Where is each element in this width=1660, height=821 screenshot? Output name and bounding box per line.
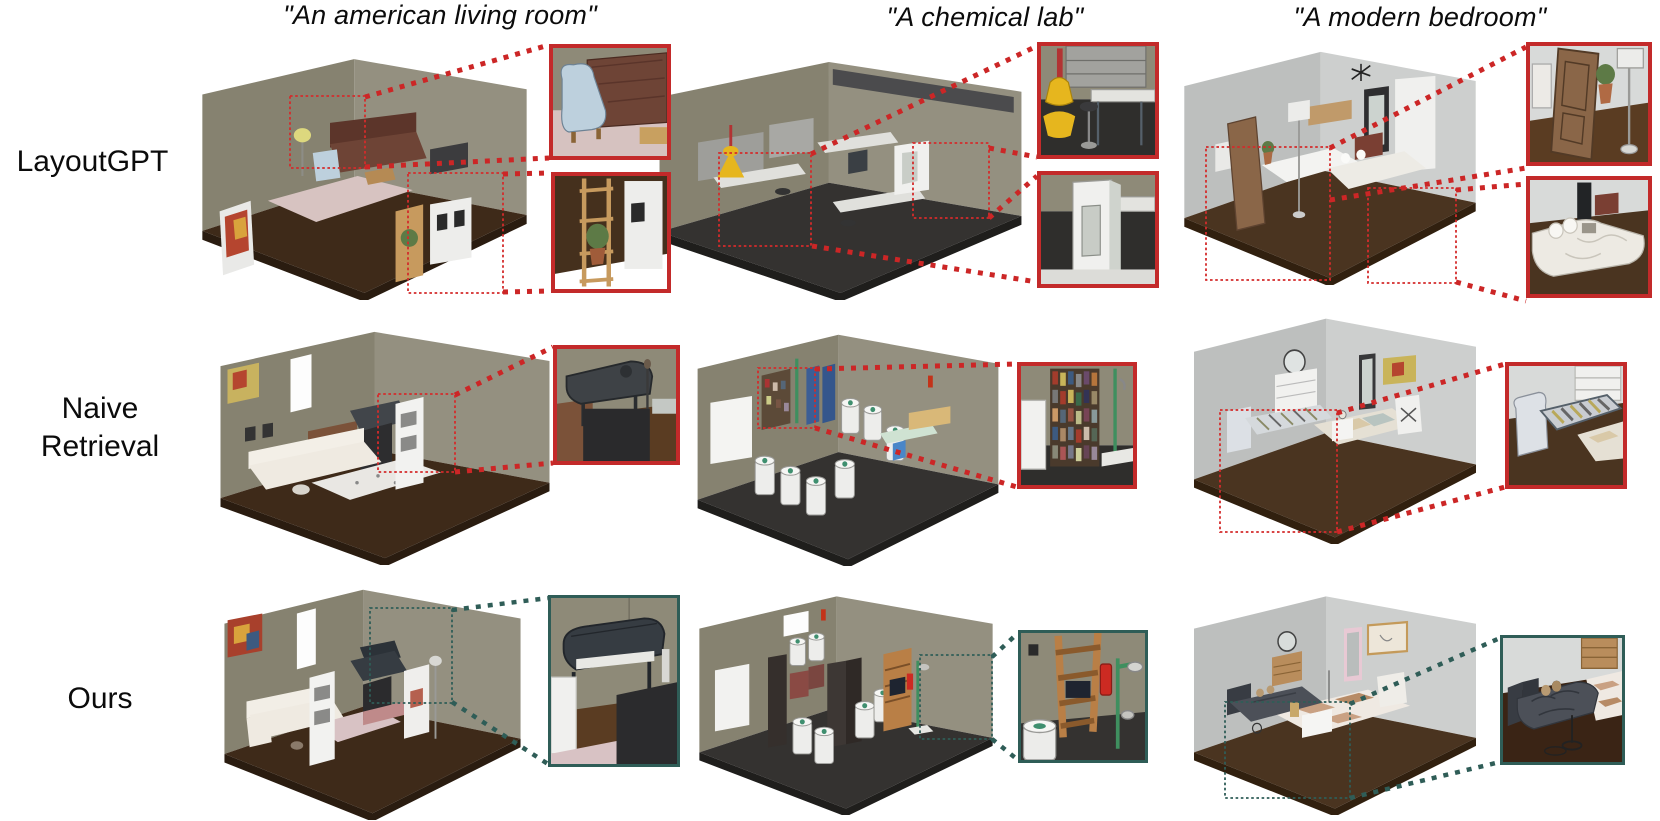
- inset-sofa-closeup: [549, 44, 671, 160]
- round-mirror: [1284, 350, 1305, 373]
- inset-lamp-closeup: [1037, 42, 1159, 159]
- floor-lamp: [429, 656, 442, 666]
- blue-cabinet: [806, 365, 819, 425]
- inset-piano-ours-closeup: [548, 595, 680, 767]
- scene-naive-living-room: [210, 325, 560, 565]
- round-mirror: [1278, 632, 1296, 651]
- scene-ours-living-room: [215, 583, 530, 820]
- paper-figure: "An american living room" "A chemical la…: [0, 0, 1660, 821]
- inset-bed-closeup: [1526, 176, 1652, 298]
- doorway: [291, 354, 312, 412]
- fridge: [710, 396, 752, 464]
- shelving: [769, 118, 813, 158]
- scene-ours-modern-bedroom: [1185, 590, 1485, 815]
- prompt-title-modern-bedroom: "A modern bedroom": [1220, 2, 1620, 33]
- inset-bedframe-closeup: [1505, 362, 1627, 489]
- method-label-layoutgpt: LayoutGPT: [0, 143, 185, 181]
- stool: [775, 188, 790, 195]
- plant: [401, 229, 418, 247]
- prompt-title-chemical-lab: "A chemical lab": [790, 2, 1180, 33]
- stool: [841, 220, 856, 227]
- inset-shelf-closeup: [551, 172, 671, 293]
- machine: [848, 150, 867, 175]
- floor-lamp-shade: [1288, 100, 1310, 122]
- side-table: [292, 484, 310, 494]
- inset-wooden-shelf-closeup: [1018, 630, 1148, 763]
- method-label-ours: Ours: [30, 680, 170, 718]
- blue-cabinet: [822, 364, 835, 424]
- table-lamp: [1290, 703, 1299, 717]
- prompt-title-living-room: "An american living room": [235, 0, 645, 31]
- scene-ours-chemical-lab: [690, 590, 1002, 815]
- dark-cabinet: [768, 654, 787, 747]
- inset-cabinet-closeup: [1037, 171, 1159, 288]
- laptop: [890, 677, 906, 696]
- fridge: [715, 664, 749, 732]
- nightstand: [1332, 418, 1353, 441]
- fire-extinguisher: [928, 376, 933, 388]
- stool: [291, 741, 304, 749]
- red-rig: [790, 670, 809, 699]
- red-rig: [809, 664, 825, 690]
- jar-lamp: [1339, 411, 1346, 419]
- inset-dark-bed-closeup: [1500, 635, 1625, 765]
- inset-door-closeup: [1526, 42, 1652, 166]
- frame: [245, 426, 256, 441]
- scene-layoutgpt-modern-bedroom: [1175, 45, 1485, 285]
- frame: [263, 423, 274, 438]
- fire-extinguisher: [907, 674, 913, 690]
- inset-piano-closeup: [553, 345, 680, 465]
- scene-layoutgpt-chemical-lab: [648, 55, 1033, 300]
- inset-bookshelf-closeup: [1017, 362, 1137, 489]
- scene-naive-chemical-lab: [688, 328, 1008, 566]
- floor-lamp: [294, 128, 311, 142]
- cluttered-bookshelf: [762, 369, 791, 430]
- method-label-naive-retrieval: Naive Retrieval: [10, 390, 190, 465]
- doorway: [297, 608, 316, 669]
- armchair: [1377, 672, 1407, 707]
- white-boards: [430, 197, 471, 264]
- chair: [1215, 141, 1231, 172]
- blue-armchair: [313, 149, 341, 181]
- pin-board: [1368, 622, 1407, 654]
- headboard: [1227, 406, 1251, 452]
- shower-head: [919, 664, 930, 670]
- blue-chair: [893, 440, 906, 460]
- fire-extinguisher: [821, 609, 826, 620]
- scene-layoutgpt-living-room: [192, 52, 537, 300]
- scene-naive-modern-bedroom: [1185, 312, 1485, 544]
